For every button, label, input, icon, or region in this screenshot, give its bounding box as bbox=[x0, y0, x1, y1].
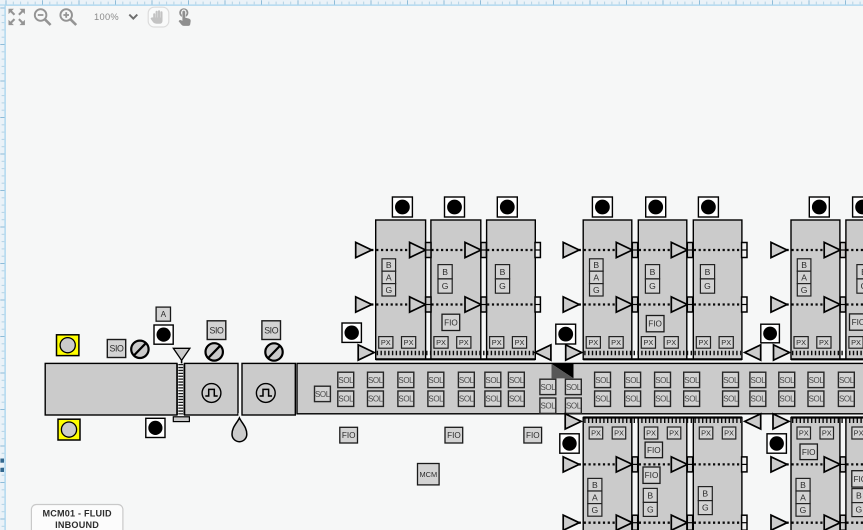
svg-text:G: G bbox=[499, 281, 506, 291]
svg-text:B: B bbox=[442, 267, 448, 277]
svg-text:PX: PX bbox=[614, 429, 624, 438]
svg-text:FIO: FIO bbox=[526, 431, 540, 440]
svg-text:SOL: SOL bbox=[625, 395, 641, 404]
svg-text:G: G bbox=[385, 285, 392, 295]
svg-text:PX: PX bbox=[701, 429, 711, 438]
svg-text:SOL: SOL bbox=[655, 395, 671, 404]
svg-text:SOL: SOL bbox=[459, 376, 475, 385]
svg-text:B: B bbox=[647, 491, 653, 501]
svg-text:SOL: SOL bbox=[750, 376, 766, 385]
svg-text:FIO: FIO bbox=[852, 318, 863, 327]
svg-text:G: G bbox=[704, 281, 711, 291]
svg-text:B: B bbox=[702, 489, 708, 499]
svg-text:SOL: SOL bbox=[338, 395, 354, 404]
svg-text:SOL: SOL bbox=[595, 395, 611, 404]
svg-text:PX: PX bbox=[819, 338, 829, 347]
svg-text:SOL: SOL bbox=[428, 376, 444, 385]
svg-text:A: A bbox=[386, 273, 392, 283]
svg-text:SOL: SOL bbox=[509, 376, 525, 385]
svg-text:FIO: FIO bbox=[647, 446, 661, 455]
svg-text:SIO: SIO bbox=[110, 344, 125, 354]
svg-text:PX: PX bbox=[404, 338, 414, 347]
svg-text:A: A bbox=[801, 273, 807, 283]
svg-text:SIO: SIO bbox=[210, 325, 225, 335]
svg-text:G: G bbox=[856, 505, 863, 515]
svg-text:G: G bbox=[800, 505, 807, 515]
svg-text:PX: PX bbox=[854, 429, 863, 438]
svg-text:PX: PX bbox=[822, 429, 832, 438]
svg-text:SOL: SOL bbox=[684, 376, 700, 385]
svg-text:FIO: FIO bbox=[802, 448, 816, 457]
svg-text:G: G bbox=[702, 503, 709, 513]
svg-text:FIO: FIO bbox=[444, 318, 458, 327]
svg-text:G: G bbox=[649, 281, 656, 291]
svg-text:MCM01 - FLUID: MCM01 - FLUID bbox=[42, 508, 112, 518]
svg-text:PX: PX bbox=[611, 338, 621, 347]
svg-text:G: G bbox=[593, 285, 600, 295]
svg-text:B: B bbox=[705, 267, 711, 277]
svg-text:SOL: SOL bbox=[315, 390, 331, 399]
svg-text:SOL: SOL bbox=[779, 376, 795, 385]
svg-text:FIO: FIO bbox=[645, 471, 659, 480]
svg-text:PX: PX bbox=[666, 338, 676, 347]
svg-text:SOL: SOL bbox=[368, 395, 384, 404]
svg-text:100%: 100% bbox=[94, 12, 119, 22]
svg-text:B: B bbox=[800, 480, 806, 490]
svg-text:SOL: SOL bbox=[485, 376, 501, 385]
svg-text:FIO: FIO bbox=[648, 320, 662, 329]
svg-text:A: A bbox=[161, 310, 167, 319]
svg-text:PX: PX bbox=[799, 429, 809, 438]
svg-text:SOL: SOL bbox=[595, 376, 611, 385]
svg-text:PX: PX bbox=[588, 338, 598, 347]
svg-text:B: B bbox=[593, 260, 599, 270]
svg-text:A: A bbox=[800, 492, 806, 502]
svg-text:PX: PX bbox=[698, 338, 708, 347]
svg-text:SOL: SOL bbox=[485, 395, 501, 404]
svg-text:FIO: FIO bbox=[342, 431, 356, 440]
svg-text:SOL: SOL bbox=[809, 376, 825, 385]
svg-text:SOL: SOL bbox=[809, 395, 825, 404]
svg-text:SOL: SOL bbox=[839, 376, 855, 385]
svg-text:SOL: SOL bbox=[398, 395, 414, 404]
svg-text:SOL: SOL bbox=[338, 376, 354, 385]
svg-text:SOL: SOL bbox=[540, 383, 556, 392]
svg-text:PX: PX bbox=[459, 338, 469, 347]
svg-text:SOL: SOL bbox=[540, 402, 556, 411]
svg-text:B: B bbox=[856, 491, 862, 501]
svg-text:PX: PX bbox=[796, 338, 806, 347]
svg-text:B: B bbox=[500, 267, 506, 277]
svg-text:PX: PX bbox=[492, 338, 502, 347]
svg-text:FIO: FIO bbox=[853, 475, 863, 484]
svg-text:SOL: SOL bbox=[684, 395, 700, 404]
svg-text:B: B bbox=[592, 480, 598, 490]
svg-text:PX: PX bbox=[724, 429, 734, 438]
svg-text:PX: PX bbox=[851, 338, 861, 347]
svg-text:SOL: SOL bbox=[368, 376, 384, 385]
svg-text:SOL: SOL bbox=[509, 395, 525, 404]
svg-text:INBOUND: INBOUND bbox=[55, 520, 99, 530]
svg-text:PX: PX bbox=[436, 338, 446, 347]
svg-text:SOL: SOL bbox=[750, 395, 766, 404]
svg-text:SOL: SOL bbox=[723, 376, 739, 385]
svg-text:PX: PX bbox=[721, 338, 731, 347]
svg-text:SOL: SOL bbox=[625, 376, 641, 385]
svg-text:G: G bbox=[442, 281, 449, 291]
svg-text:PX: PX bbox=[515, 338, 525, 347]
svg-text:SOL: SOL bbox=[398, 376, 414, 385]
svg-text:PX: PX bbox=[381, 338, 391, 347]
svg-text:PX: PX bbox=[646, 429, 656, 438]
svg-text:G: G bbox=[592, 505, 599, 515]
svg-text:SOL: SOL bbox=[566, 383, 582, 392]
svg-text:B: B bbox=[801, 260, 807, 270]
svg-text:SOL: SOL bbox=[779, 395, 795, 404]
svg-text:B: B bbox=[386, 260, 392, 270]
svg-text:SOL: SOL bbox=[839, 395, 855, 404]
svg-text:MCM: MCM bbox=[419, 470, 437, 479]
svg-text:B: B bbox=[650, 267, 656, 277]
svg-text:PX: PX bbox=[591, 429, 601, 438]
svg-text:SOL: SOL bbox=[566, 402, 582, 411]
svg-text:PX: PX bbox=[669, 429, 679, 438]
svg-text:SOL: SOL bbox=[655, 376, 671, 385]
svg-text:SIO: SIO bbox=[264, 325, 279, 335]
svg-text:SOL: SOL bbox=[723, 395, 739, 404]
svg-text:PX: PX bbox=[643, 338, 653, 347]
svg-text:A: A bbox=[592, 492, 598, 502]
svg-text:SOL: SOL bbox=[459, 395, 475, 404]
svg-text:G: G bbox=[647, 505, 654, 515]
svg-text:FIO: FIO bbox=[447, 431, 461, 440]
svg-text:A: A bbox=[593, 273, 599, 283]
svg-text:G: G bbox=[801, 285, 808, 295]
svg-text:SOL: SOL bbox=[428, 395, 444, 404]
